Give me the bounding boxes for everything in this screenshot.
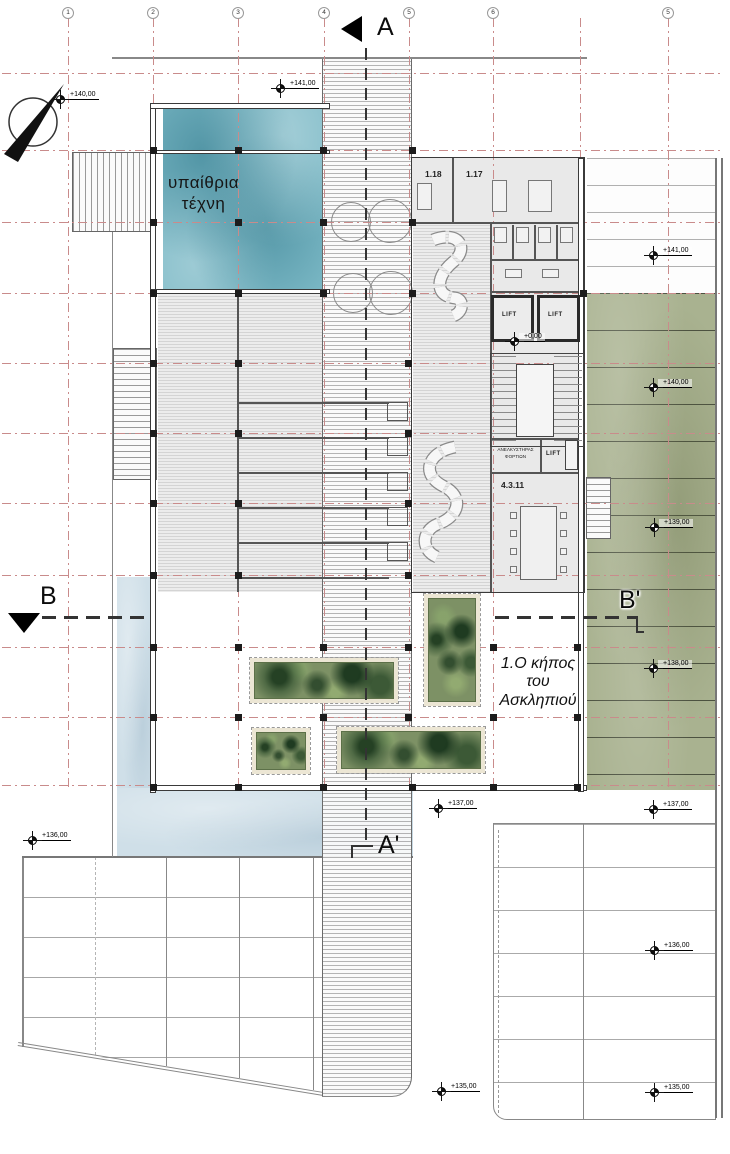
structural-column [409, 219, 416, 226]
desk [417, 183, 432, 210]
structural-column [574, 714, 581, 721]
benchmark-icon [649, 383, 658, 392]
elevation-label: +135,00 [659, 1084, 693, 1093]
promenade-edge-line [112, 230, 113, 857]
parking-grid [22, 857, 323, 1095]
grid-line-horizontal [2, 363, 724, 364]
section-b-prime-tick [636, 631, 644, 633]
structural-column [405, 360, 412, 367]
elevation-label: +141,00 [658, 247, 692, 256]
parking-lane-line [166, 857, 167, 1066]
freight-lift-label-line2: ΦΟΡΤΙΩΝ [505, 454, 526, 459]
benchmark-icon [650, 523, 659, 532]
structural-column [150, 500, 157, 507]
room-number-117: 1.17 [466, 169, 483, 179]
structural-column [150, 572, 157, 579]
chair [510, 512, 517, 519]
toilet-fixture [560, 227, 573, 243]
grid-line-horizontal [2, 293, 724, 294]
room-number-4311: 4.3.11 [501, 480, 524, 490]
site-east-edge-outer [721, 158, 723, 1118]
elevation-label: +138,00 [658, 660, 692, 669]
structural-column [235, 784, 242, 791]
structural-column [320, 219, 327, 226]
desk-double [528, 180, 552, 212]
threshold-box [387, 402, 408, 421]
structural-column [574, 644, 581, 651]
threshold-box [387, 437, 408, 456]
structural-column [235, 147, 242, 154]
structural-column [405, 714, 412, 721]
elevation-marker: +137,00 [649, 805, 658, 814]
elevation-marker: +140,00 [649, 383, 658, 392]
lift-label: LIFT [548, 312, 563, 318]
structural-column [405, 500, 412, 507]
north-arrow-icon [0, 78, 74, 170]
northwest-stair [72, 152, 151, 232]
elevation-marker: +139,00 [650, 523, 659, 532]
sink [505, 269, 522, 278]
structural-column [150, 784, 157, 791]
elevation-marker: +136,00 [650, 946, 659, 955]
section-a-arrow [341, 16, 362, 42]
grid-line-horizontal [2, 575, 724, 576]
garden-line3: Ασκληπιού [499, 692, 576, 709]
east-exterior-stair [586, 477, 611, 539]
floor-plan-canvas: LIFT LIFT ΑΝΕΛΚΥΣΤΗΡΑΣ ΦΟΡΤΙΩΝ LIFT 4.3.… [0, 0, 730, 1154]
threshold-box [387, 472, 408, 491]
meeting-table [520, 506, 557, 580]
chair [560, 530, 567, 537]
benchmark-icon [649, 664, 658, 673]
asclepius-garden-label: 1.Ο κήπος του Ασκληπιού [488, 655, 588, 710]
grid-line-horizontal [2, 647, 724, 648]
structural-column [405, 430, 412, 437]
garden-line1: 1.Ο κήπος [501, 655, 575, 672]
elevation-marker: +136,00 [28, 836, 37, 845]
benchmark-icon [437, 1087, 446, 1096]
section-a-line [365, 48, 367, 840]
garden-planter [252, 728, 310, 774]
structural-column [150, 219, 157, 226]
grid-line-vertical [409, 18, 410, 790]
structural-column [490, 644, 497, 651]
stair-treads-left [492, 356, 516, 444]
structural-column [320, 147, 327, 154]
structural-column [320, 714, 327, 721]
shallow-water-strip [117, 577, 153, 790]
parking-lane-line [239, 857, 240, 1078]
benchmark-icon [649, 805, 658, 814]
grid-bubble-5: 5 [403, 7, 415, 19]
stair-treads-right [554, 356, 582, 444]
elevation-label: +140,00 [658, 379, 692, 388]
open-air-art-line1: υπαίθρια [168, 173, 239, 192]
structural-column [235, 500, 242, 507]
structural-column [409, 784, 416, 791]
upper-terrace-edge [112, 57, 587, 59]
toilet-fixture [516, 227, 529, 243]
benchmark-icon [276, 84, 285, 93]
garden-planter [250, 658, 398, 703]
grid-line-horizontal [2, 717, 724, 718]
chair [510, 566, 517, 573]
upper-terraces [587, 158, 716, 293]
structural-column [320, 290, 327, 297]
structural-column [580, 290, 587, 297]
structural-column [150, 430, 157, 437]
elevation-marker: +137,00 [434, 804, 443, 813]
room-number-118: 1.18 [425, 169, 442, 179]
section-a-letter: A [377, 13, 394, 42]
structural-column [235, 644, 242, 651]
structural-column [235, 290, 242, 297]
chair [560, 548, 567, 555]
elevation-marker: +138,00 [649, 664, 658, 673]
grid-line-horizontal [2, 150, 724, 151]
parking-west-edge [22, 857, 24, 1047]
elevation-marker: +141,00 [649, 251, 658, 260]
structural-column [150, 290, 157, 297]
grid-line-horizontal [2, 73, 724, 74]
chair [560, 566, 567, 573]
section-b-letter: B [40, 582, 57, 611]
elevation-marker: +0,00 [510, 337, 519, 346]
open-air-art-label: υπαίθρια τέχνη [156, 172, 251, 215]
green-terraced-garden [587, 293, 715, 790]
structural-column [490, 714, 497, 721]
structural-column [150, 644, 157, 651]
section-b-prime-line [495, 616, 638, 619]
structural-column [405, 644, 412, 651]
freight-lift-label-line1: ΑΝΕΛΚΥΣΤΗΡΑΣ [497, 447, 533, 452]
lift-label: LIFT [502, 312, 517, 318]
service-shaft [565, 440, 578, 470]
chair [510, 530, 517, 537]
grid-line-horizontal [2, 503, 724, 504]
grid-line-vertical [668, 18, 669, 790]
chair [560, 512, 567, 519]
threshold-box [387, 507, 408, 526]
stair-void [516, 364, 554, 437]
toilet-fixture [538, 227, 551, 243]
grid-bubble-1: 1 [62, 7, 74, 19]
benchmark-icon [434, 804, 443, 813]
terrace-divider-line [583, 823, 584, 1120]
structural-column [235, 360, 242, 367]
elevation-label: +139,00 [659, 519, 693, 528]
south-colonnade-wall [150, 785, 587, 791]
pool-north-wall [150, 103, 330, 109]
elevation-label: +136,00 [659, 942, 693, 951]
benchmark-icon [650, 946, 659, 955]
section-b-prime-letter: B' [619, 586, 640, 615]
lower-terraces-block [493, 823, 716, 1120]
elevation-marker: +135,00 [437, 1087, 446, 1096]
elevation-label: +137,00 [658, 801, 692, 810]
section-b-arrow [8, 613, 40, 633]
chair [510, 548, 517, 555]
benchmark-icon [650, 1088, 659, 1097]
grid-line-horizontal [2, 222, 724, 223]
threshold-box [387, 542, 408, 561]
structural-column [490, 784, 497, 791]
structural-column [235, 219, 242, 226]
structural-column [235, 714, 242, 721]
section-a-prime-tick [351, 845, 373, 847]
structural-column [320, 644, 327, 651]
open-air-art-line2: τέχνη [182, 194, 226, 213]
structural-column [409, 147, 416, 154]
site-east-edge [715, 158, 717, 1118]
grid-line-horizontal [2, 433, 724, 434]
benchmark-icon [649, 251, 658, 260]
west-rooms-wall [237, 293, 239, 592]
section-a-prime-letter: A' [378, 831, 399, 860]
elevation-marker: +135,00 [650, 1088, 659, 1097]
benchmark-icon [28, 836, 37, 845]
section-b-line [42, 616, 152, 619]
lift-label: LIFT [546, 451, 561, 457]
structural-column [405, 572, 412, 579]
grid-bubble-4: 4 [318, 7, 330, 19]
garden-planter [337, 727, 485, 773]
garden-line2: του [526, 673, 549, 690]
elevation-label: +135,00 [446, 1083, 480, 1092]
grid-bubble-6: 6 [487, 7, 499, 19]
freight-lift-label: ΑΝΕΛΚΥΣΤΗΡΑΣ ΦΟΡΤΙΩΝ [492, 447, 539, 461]
parking-lane-dashed [95, 857, 96, 1055]
elevation-label: +0,00 [519, 333, 545, 342]
structural-column [320, 784, 327, 791]
desk [492, 180, 507, 212]
structural-column [235, 430, 242, 437]
toilet-fixture [494, 227, 507, 243]
structural-column [409, 290, 416, 297]
benchmark-icon [510, 337, 519, 346]
grid-bubble-2: 2 [147, 7, 159, 19]
structural-column [574, 784, 581, 791]
structural-column [150, 147, 157, 154]
grid-bubble-7: 5 [662, 7, 674, 19]
structural-column [235, 572, 242, 579]
elevation-label: +136,00 [37, 832, 71, 841]
sink [542, 269, 559, 278]
elevation-label: +137,00 [443, 800, 477, 809]
elevation-marker: +141,00 [276, 84, 285, 93]
structural-column [150, 714, 157, 721]
structural-column [150, 360, 157, 367]
elevation-label: +141,00 [285, 80, 319, 89]
garden-planter [424, 594, 480, 706]
grid-bubble-3: 3 [232, 7, 244, 19]
expansion-joint-line [498, 830, 499, 1113]
tree-circle [368, 199, 412, 243]
parking-lane-line [313, 857, 314, 1090]
interior-deck-west [158, 293, 322, 592]
